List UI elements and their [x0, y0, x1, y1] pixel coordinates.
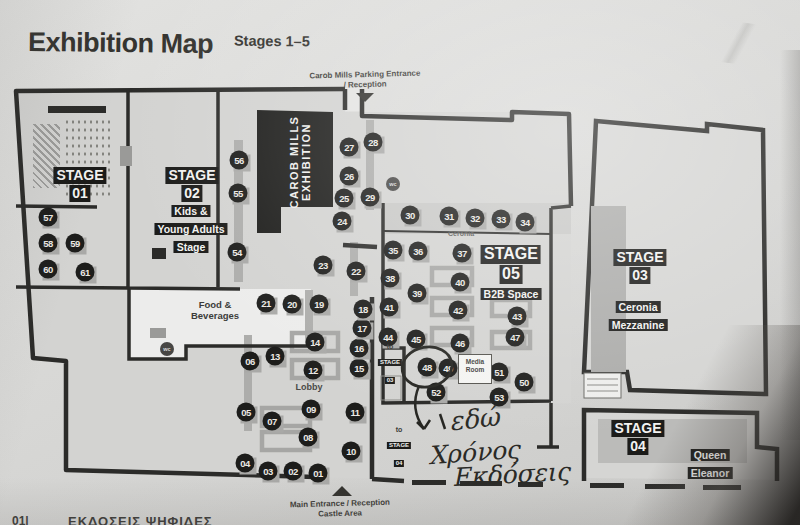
- booth-19: 19: [310, 295, 329, 314]
- booth-10: 10: [342, 442, 361, 461]
- booth-33: 33: [492, 210, 511, 229]
- carob-mills-exhibition-label: CAROB MILLSEXHIBITION: [288, 116, 312, 209]
- booth-17: 17: [353, 319, 372, 338]
- booth-24: 24: [333, 212, 352, 231]
- booth-32: 32: [466, 209, 485, 228]
- wc-marker: wc: [386, 177, 400, 191]
- booth-25: 25: [335, 189, 354, 208]
- booth-42: 42: [449, 301, 468, 320]
- booth-39: 39: [408, 284, 427, 303]
- booth-26: 26: [340, 167, 359, 186]
- stage04-sublabel: Queen Eleanor: [688, 445, 733, 481]
- to-stage04-label: to STAGE 04: [387, 426, 411, 469]
- booth-20: 20: [283, 295, 302, 314]
- stage04-label: STAGE 04: [611, 419, 664, 455]
- booth-48: 48: [418, 358, 437, 377]
- main-entrance-label: Main Entrance / ReceptionCastle Area: [290, 498, 390, 520]
- booth-05: 05: [237, 403, 256, 422]
- booth-16: 16: [350, 339, 369, 358]
- exhibition-map-page: Exhibition Map Stages 1–5 Carob Mills Pa…: [0, 0, 800, 525]
- booth-11: 11: [346, 403, 365, 422]
- booth-18: 18: [354, 300, 373, 319]
- booth-31: 31: [440, 207, 459, 226]
- booth-58: 58: [39, 234, 58, 253]
- stage05-label: STAGE 05 B2B Space: [481, 244, 542, 302]
- booth-21: 21: [257, 294, 276, 313]
- booth-34: 34: [516, 213, 535, 232]
- stage02-sublabel: Kids & Young Adults Stage: [154, 201, 227, 255]
- booth-45: 45: [407, 330, 426, 349]
- booth-51: 51: [490, 363, 509, 382]
- booth-46: 46: [451, 334, 470, 353]
- booth-12: 12: [304, 361, 323, 380]
- booth-61: 61: [76, 263, 95, 282]
- booth-14: 14: [306, 333, 325, 352]
- booth-27: 27: [340, 138, 359, 157]
- wc-marker: wc: [160, 342, 174, 356]
- booth-09: 09: [302, 400, 321, 419]
- booth-55: 55: [229, 184, 248, 203]
- booth-54: 54: [228, 243, 247, 262]
- booth-08: 08: [299, 428, 318, 447]
- booth-38: 38: [381, 269, 400, 288]
- booth-07: 07: [263, 412, 282, 431]
- food-beverages-label: Food &Beverages: [191, 299, 239, 321]
- handwriting-line3: Εκδόσεις: [451, 457, 570, 492]
- stage01-label: STAGE 01: [53, 166, 106, 202]
- booth-15: 15: [350, 359, 369, 378]
- booth-41: 41: [380, 298, 399, 317]
- booth-37: 37: [453, 244, 472, 263]
- booth-40: 40: [451, 273, 470, 292]
- booth-50: 50: [515, 373, 534, 392]
- booth-13: 13: [266, 347, 285, 366]
- booth-59: 59: [66, 234, 85, 253]
- booth-22: 22: [347, 262, 366, 281]
- booth-43: 43: [508, 307, 527, 326]
- parking-entrance-label: Carob Mills Parking Entrance/ Reception: [309, 69, 421, 91]
- footer-section-title: ΕΚΔΟΣΕΙΣ ΨΗΦΙΔΕΣ: [68, 514, 213, 525]
- booth-47: 47: [506, 328, 525, 347]
- booth-01: 01: [309, 464, 328, 483]
- booth-49: 49: [439, 359, 458, 378]
- booth-30: 30: [401, 206, 420, 225]
- handwriting-line1: εδώ: [448, 401, 501, 436]
- footer-page-number: 01|: [12, 514, 29, 525]
- booth-23: 23: [314, 256, 333, 275]
- booth-35: 35: [384, 241, 403, 260]
- media-room-label: MediaRoom: [458, 354, 492, 384]
- to-stage03-label: to STAGE 03: [378, 343, 402, 386]
- booth-60: 60: [39, 260, 58, 279]
- booth-28: 28: [364, 133, 383, 152]
- booth-02: 02: [284, 462, 303, 481]
- stage02-label: STAGE 02: [165, 166, 218, 202]
- booth-29: 29: [361, 188, 380, 207]
- booth-52: 52: [427, 383, 446, 402]
- booth-36: 36: [409, 242, 428, 261]
- stage03-label: STAGE 03: [613, 248, 666, 284]
- lobby-label: Lobby: [296, 382, 323, 392]
- stage03-sublabel: Ceronia Mezzanine: [609, 297, 668, 333]
- booth-57: 57: [39, 208, 58, 227]
- booth-04: 04: [236, 454, 255, 473]
- booth-03: 03: [259, 462, 278, 481]
- booth-06: 06: [241, 352, 260, 371]
- booth-56: 56: [230, 151, 249, 170]
- ceronia-label: Ceronia: [448, 230, 474, 237]
